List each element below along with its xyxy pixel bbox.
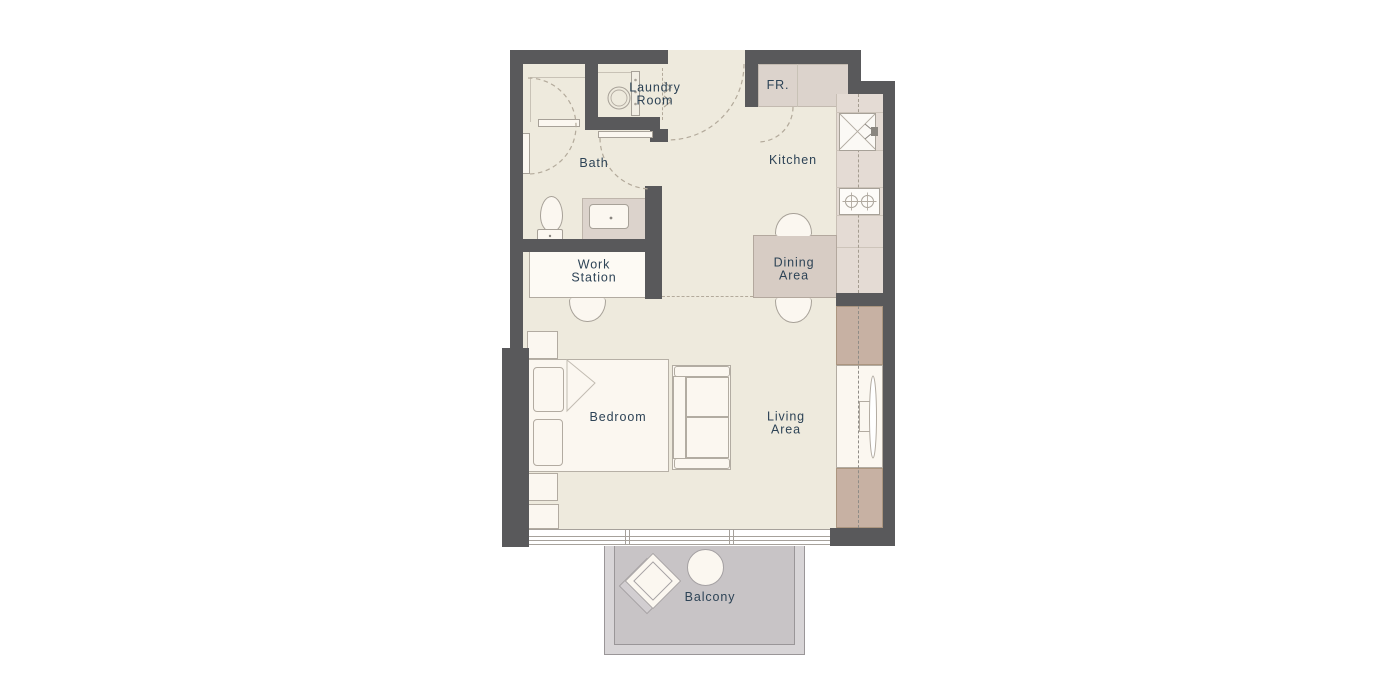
counter-seam: [836, 247, 883, 248]
wall-step: [848, 81, 895, 94]
wall-bath-bottom: [510, 239, 662, 252]
wall-laundry-horizontal: [585, 117, 660, 130]
laundry-counter-line: [598, 72, 631, 73]
wall-workstation-right: [645, 186, 662, 299]
label-living-area: Living Area: [767, 411, 805, 436]
wall-entry-stub: [745, 64, 758, 107]
label-bedroom: Bedroom: [589, 411, 646, 424]
wall-bottom-right: [830, 528, 895, 546]
bathroom-sink-icon: [589, 204, 629, 229]
window-line: [529, 529, 830, 530]
wardrobe-cabinet-top: [836, 306, 883, 365]
counter-seam: [836, 215, 883, 216]
window-mullion: [733, 529, 734, 545]
wall-laundry-vertical: [585, 50, 598, 117]
hall-living-boundary: [662, 296, 753, 297]
cabinet-centerline: [858, 306, 859, 528]
stove-icon: [839, 188, 880, 215]
window-icon: [529, 529, 830, 545]
sofa-cushion-bottom: [686, 417, 729, 458]
pillow-bottom: [533, 419, 563, 466]
label-laundry-room: Laundry Room: [629, 82, 680, 107]
wardrobe-cabinet-bottom: [836, 468, 883, 528]
label-dining-area: Dining Area: [774, 257, 815, 282]
window-mullion: [729, 529, 730, 545]
nightstand-top: [527, 331, 558, 359]
kitchen-sink-icon: [839, 113, 876, 151]
sofa-back: [673, 376, 686, 459]
window-line: [529, 536, 830, 537]
shower-enclosure-top-line: [530, 77, 585, 78]
wall-fridge-stub: [848, 64, 861, 82]
toilet-icon: [540, 196, 563, 232]
nightstand-bottom: [528, 473, 558, 501]
shower-door-icon: [538, 119, 580, 127]
floor-plan-canvas: Laundry Room FR. Bath Kitchen Work Stati…: [0, 0, 1400, 700]
label-fridge: FR.: [767, 79, 790, 92]
label-work-station: Work Station: [571, 259, 616, 284]
wall-right: [883, 94, 895, 544]
fridge-counter-divider: [797, 64, 798, 107]
tv-mount: [859, 401, 873, 432]
window-mullion: [625, 529, 626, 545]
label-bath: Bath: [579, 157, 608, 170]
label-kitchen: Kitchen: [769, 154, 817, 167]
sofa-cushion-top: [686, 377, 729, 417]
wall-left-upper: [510, 50, 523, 351]
bedroom-bench: [528, 504, 559, 529]
pillow-top: [533, 367, 564, 412]
window-mullion: [629, 529, 630, 545]
label-balcony: Balcony: [685, 591, 736, 604]
balcony-table-icon: [687, 549, 724, 586]
window-line: [529, 544, 830, 545]
wall-left-lower: [502, 348, 529, 547]
sofa-armrest-bottom: [674, 458, 730, 469]
bath-door-leaf: [598, 131, 653, 138]
wall-top-right: [745, 50, 861, 64]
shower-enclosure-side-line: [530, 77, 531, 122]
window-line: [529, 540, 830, 541]
wall-kitchen-divider: [836, 293, 895, 306]
